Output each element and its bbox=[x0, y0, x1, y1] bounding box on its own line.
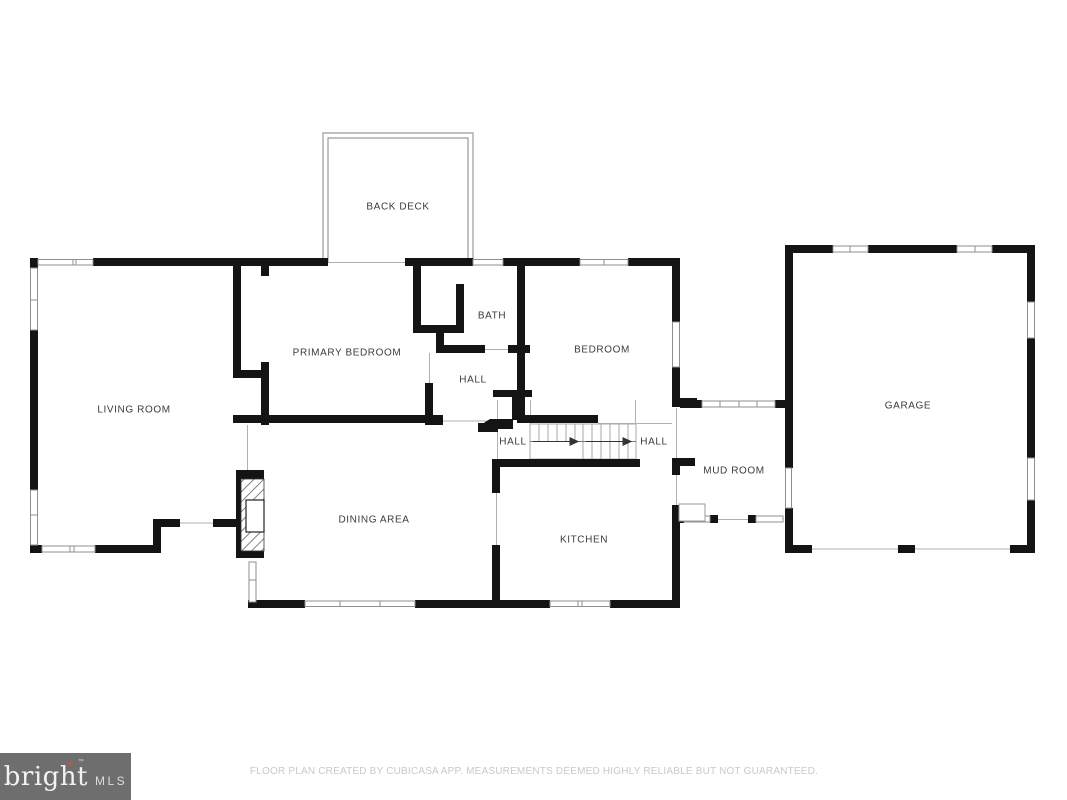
logo-brand-text: bright bbox=[4, 764, 88, 790]
floor-plan-page: BACK DECK LIVING ROOM PRIMARY BEDROOM BA… bbox=[0, 0, 1067, 800]
room-label-hall-stairs: HALL bbox=[499, 437, 526, 448]
logo-suffix-text: MLS bbox=[95, 774, 127, 788]
room-label-bath: BATH bbox=[478, 311, 506, 322]
room-label-dining-area: DINING AREA bbox=[338, 515, 409, 526]
door-leaf-icon bbox=[679, 504, 705, 521]
bright-mls-logo: bright ✦ ™ MLS bbox=[0, 753, 131, 800]
room-label-bedroom: BEDROOM bbox=[574, 345, 630, 356]
room-label-hall-upper: HALL bbox=[459, 375, 486, 386]
room-label-primary-bedroom: PRIMARY BEDROOM bbox=[293, 348, 402, 359]
logo-trademark: ™ bbox=[78, 759, 84, 765]
back-deck-outline bbox=[323, 133, 473, 262]
room-label-garage: GARAGE bbox=[885, 401, 931, 412]
room-label-living-room: LIVING ROOM bbox=[97, 405, 170, 416]
disclaimer-text: FLOOR PLAN CREATED BY CUBICASA APP. MEAS… bbox=[250, 766, 818, 777]
stairs-icon bbox=[530, 424, 636, 459]
fireplace-icon bbox=[236, 470, 264, 558]
room-label-kitchen: KITCHEN bbox=[560, 535, 608, 546]
room-label-mud-room: MUD ROOM bbox=[703, 466, 764, 477]
logo-star-icon: ✦ bbox=[67, 760, 75, 769]
room-label-hall-right: HALL bbox=[640, 437, 667, 448]
room-label-back-deck: BACK DECK bbox=[366, 202, 429, 213]
